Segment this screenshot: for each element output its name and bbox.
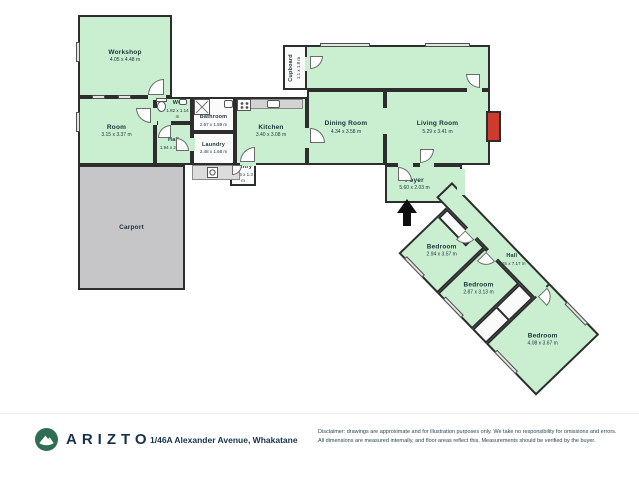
disclaimer-line-2: All dimensions are measured internally, …: [318, 437, 630, 446]
room-dims: 2.67 x 1.59 m: [200, 122, 228, 128]
arizto-logo-icon: [35, 428, 58, 451]
window: [118, 95, 131, 99]
window: [320, 43, 370, 47]
room-dims: 4.05 x 4.48 m: [108, 57, 141, 64]
door-gap: [151, 108, 157, 125]
room-dims: 2.48 x 1.68 m: [200, 149, 227, 155]
stove-icon: [237, 99, 251, 111]
window: [76, 112, 80, 132]
wc-sink-icon: [179, 99, 187, 105]
entrance-arrow-icon: [396, 199, 418, 227]
door-gap: [381, 108, 389, 134]
disclaimer: Disclaimer: drawings are approximate and…: [318, 428, 630, 446]
room-dims: 5.29 x 3.41 m: [417, 129, 459, 136]
room-dims: 2.87 x 3.13 m: [463, 290, 493, 297]
door-gap: [188, 138, 195, 151]
footer: ARIZTO 1/46A Alexander Avenue, Whakatane…: [0, 413, 639, 480]
door-gap: [457, 169, 465, 195]
room-label: Carport: [119, 223, 144, 232]
room-label: Laundry: [200, 142, 227, 150]
fireplace-icon: [486, 111, 501, 142]
room-dims: 5.60 x 2.03 m: [399, 185, 429, 192]
room-carport: Carport: [78, 165, 185, 290]
window: [425, 43, 470, 47]
room-label: Room: [101, 123, 131, 132]
room-label: Bedroom: [426, 242, 456, 251]
room-label: Bathroom: [200, 114, 228, 122]
room-dining: Dining Room 4.34 x 3.58 m: [307, 90, 385, 165]
room-label: Cupboard: [288, 54, 296, 82]
window: [76, 42, 80, 62]
room-dims: 4.34 x 3.58 m: [325, 129, 368, 136]
floor-plan: Workshop 4.05 x 4.48 m Cupboard 1.1 x 1.…: [0, 0, 639, 412]
room-dims: 3.40 x 3.08 m: [256, 132, 286, 139]
room-label: Bedroom: [527, 331, 557, 340]
kitchen-sink-icon: [267, 100, 280, 108]
room-laundry: Laundry 2.48 x 1.68 m: [192, 132, 235, 165]
bathroom-sink-icon: [224, 100, 233, 108]
disclaimer-line-1: Disclaimer: drawings are approximate and…: [318, 428, 630, 437]
room-cupboard: Cupboard 1.1 x 1.8 m: [283, 45, 307, 90]
room-dims: 1.82 x 1.14 m: [165, 108, 190, 121]
toilet-icon: [157, 101, 166, 112]
room-dims: 1.1 x 1.8 m: [296, 54, 302, 82]
room-label: Living Room: [417, 119, 459, 128]
bedroom-wing: Hall 1.15 x 7.17 m Bedroom 2.94 x 3.57 m…: [389, 182, 600, 396]
room-dims: 3.15 x 3.37 m: [101, 132, 131, 139]
room-label: Bedroom: [463, 280, 493, 289]
property-address: 1/46A Alexander Avenue, Whakatane: [150, 435, 298, 445]
room-dims: 2.94 x 3.57 m: [426, 251, 456, 258]
washer-icon: [207, 167, 218, 178]
shower-icon: [194, 99, 210, 115]
room-living: Living Room 5.29 x 3.41 m: [385, 90, 490, 165]
window: [92, 95, 105, 99]
room-dims: 4.08 x 3.67 m: [527, 340, 557, 347]
room-label: Workshop: [108, 48, 141, 57]
brand-name: ARIZTO: [66, 431, 152, 448]
room-label: Dining Room: [325, 119, 368, 128]
door-gap: [420, 162, 434, 168]
room-label: Kitchen: [256, 123, 286, 132]
